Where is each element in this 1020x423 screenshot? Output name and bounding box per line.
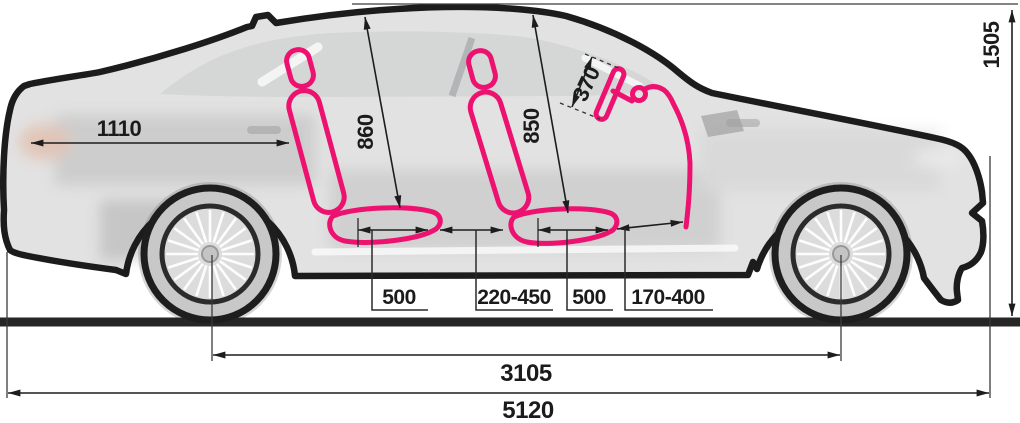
rear-shade	[55, 115, 315, 185]
rear-hub	[202, 246, 218, 262]
dim-860-label: 860	[353, 114, 378, 149]
dim-1505-label: 1505	[979, 21, 1004, 68]
headlight	[914, 148, 966, 168]
dim-220-450-label: 220-450	[477, 286, 551, 309]
front-door-handle	[726, 119, 760, 127]
diagram-canvas: 1110 860 850 370 1505 500 220-450 500 17…	[0, 0, 1020, 423]
dim-500-rear-label: 500	[382, 286, 416, 309]
front-shade	[700, 130, 940, 190]
dim-850-label: 850	[519, 108, 544, 143]
rear-door-handle	[247, 126, 281, 134]
dim-5120-label: 5120	[502, 397, 554, 423]
dim-500-front-label: 500	[572, 286, 606, 309]
rear-wheel	[144, 188, 276, 320]
dim-3105-label: 3105	[500, 360, 552, 387]
taillight	[19, 124, 71, 160]
dim-1110-label: 1110	[97, 116, 142, 141]
sill-highlight	[315, 248, 735, 252]
car-dimensions-diagram: 1110 860 850 370 1505 500 220-450 500 17…	[0, 0, 1020, 423]
dim-170-400-label: 170-400	[631, 286, 705, 309]
